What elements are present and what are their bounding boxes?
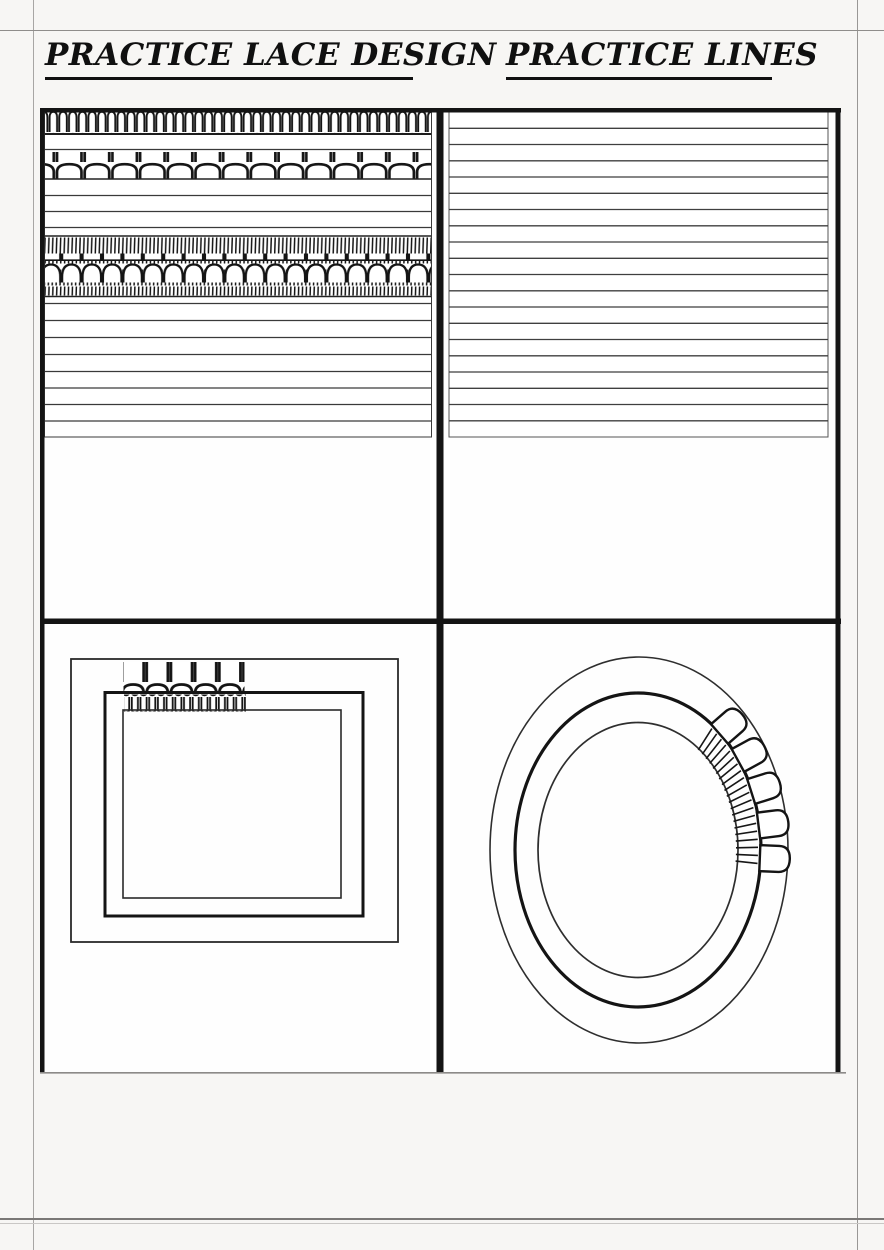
- dense-lace-band: [45, 236, 431, 297]
- small-arch-band: [45, 112, 431, 134]
- fringe-band: [124, 695, 246, 712]
- lace-practice-panel: [45, 111, 432, 438]
- practice-worksheet-page: PRACTICE LACE DESIGN PRACTICE LINES: [0, 0, 884, 1250]
- lines-practice-panel: [449, 112, 828, 437]
- worksheet-artwork: [0, 0, 884, 1250]
- square-scallop-band: [124, 662, 245, 693]
- large-scallop-band: [45, 152, 431, 179]
